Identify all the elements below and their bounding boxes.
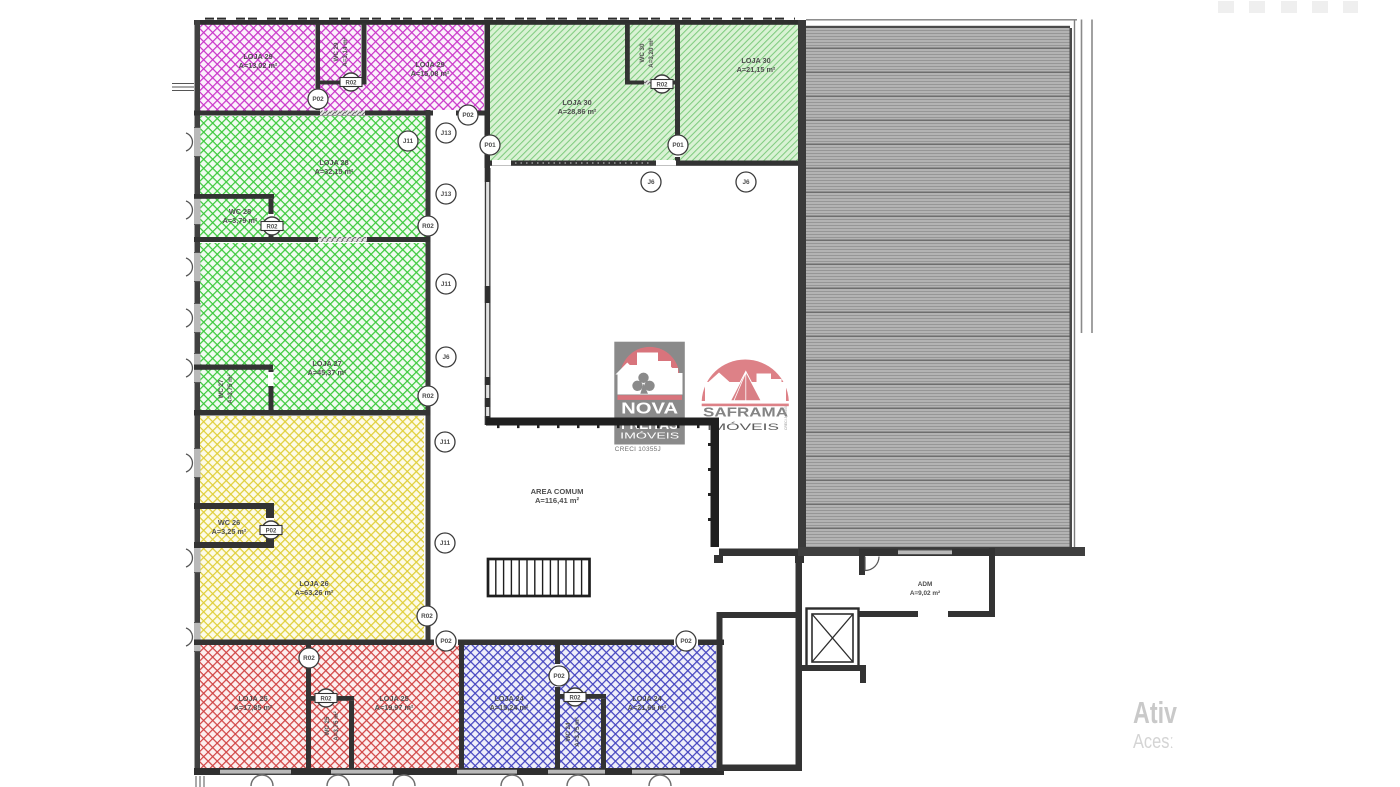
svg-text:LOJA 28: LOJA 28 (319, 158, 348, 167)
svg-text:LOJA 26: LOJA 26 (299, 579, 328, 588)
svg-text:A=3,14 m²: A=3,14 m² (342, 37, 349, 66)
svg-text:AREA COMUM: AREA COMUM (531, 487, 584, 496)
svg-text:J11: J11 (441, 281, 452, 288)
svg-text:LOJA 29: LOJA 29 (243, 52, 272, 61)
svg-text:R02: R02 (422, 393, 434, 400)
svg-text:WC 26: WC 26 (218, 518, 240, 527)
svg-text:A=63,26 m²: A=63,26 m² (295, 588, 334, 597)
svg-text:LOJA 29: LOJA 29 (415, 60, 444, 69)
svg-text:LOJA 27: LOJA 27 (312, 359, 341, 368)
svg-text:R02: R02 (345, 80, 357, 86)
svg-text:A=3,75 m²: A=3,75 m² (333, 711, 340, 740)
svg-text:P02: P02 (266, 528, 277, 534)
svg-text:P02: P02 (312, 96, 324, 103)
svg-text:LOJA 24: LOJA 24 (494, 694, 524, 703)
svg-text:WC 27: WC 27 (218, 379, 225, 398)
svg-text:LOJA 24: LOJA 24 (632, 694, 662, 703)
svg-text:A=15,24 m²: A=15,24 m² (490, 703, 529, 712)
svg-text:WC 30: WC 30 (639, 43, 646, 62)
svg-text:R02: R02 (421, 613, 433, 620)
svg-text:Acesː: Acesː (1133, 731, 1174, 753)
svg-text:R02: R02 (422, 223, 434, 230)
svg-text:J6: J6 (647, 179, 655, 186)
svg-text:P02: P02 (440, 638, 452, 645)
svg-text:LOJA 30: LOJA 30 (741, 56, 770, 65)
svg-text:J11: J11 (440, 540, 451, 547)
svg-text:A=3,75 m²: A=3,75 m² (227, 374, 234, 403)
svg-text:A=21,15 m²: A=21,15 m² (737, 65, 776, 74)
svg-text:LOJA 25: LOJA 25 (379, 694, 408, 703)
svg-text:WC 25: WC 25 (324, 716, 331, 735)
svg-text:P02: P02 (462, 112, 474, 119)
svg-text:A=15,08 m²: A=15,08 m² (411, 69, 450, 78)
svg-text:A=3,20 m²: A=3,20 m² (648, 38, 655, 67)
svg-text:R02: R02 (320, 696, 332, 702)
svg-text:A=3,79 m²: A=3,79 m² (223, 216, 258, 225)
svg-text:A=13,02 m²: A=13,02 m² (239, 61, 278, 70)
svg-text:A=45,37 m²: A=45,37 m² (308, 368, 347, 377)
svg-text:NOVA: NOVA (621, 401, 679, 418)
svg-text:A=32,15 m²: A=32,15 m² (315, 167, 354, 176)
svg-text:A=3,75 m²: A=3,75 m² (574, 717, 581, 746)
svg-text:P01: P01 (484, 142, 496, 149)
svg-text:WC 28: WC 28 (229, 207, 251, 216)
svg-text:R02: R02 (569, 695, 581, 701)
svg-text:A=17,85 m²: A=17,85 m² (234, 703, 273, 712)
svg-text:R02: R02 (266, 224, 278, 230)
svg-text:WC 24: WC 24 (565, 722, 572, 741)
svg-text:A=28,86 m²: A=28,86 m² (558, 107, 597, 116)
svg-text:A=3,25 m²: A=3,25 m² (212, 527, 247, 536)
svg-text:LOJA 30: LOJA 30 (562, 98, 591, 107)
svg-text:P02: P02 (553, 673, 565, 680)
svg-text:A=116,41 m²: A=116,41 m² (535, 496, 580, 505)
svg-text:Ativ: Ativ (1133, 695, 1178, 730)
svg-text:CRECI 10355J: CRECI 10355J (615, 446, 661, 453)
svg-text:A=19,97 m²: A=19,97 m² (375, 703, 414, 712)
svg-text:ADM: ADM (918, 581, 933, 588)
svg-text:P01: P01 (672, 142, 684, 149)
svg-text:R02: R02 (303, 655, 315, 662)
svg-text:CRECI J-10355: CRECI J-10355 (784, 406, 788, 430)
svg-text:P02: P02 (680, 638, 692, 645)
svg-text:J13: J13 (441, 130, 452, 137)
svg-text:R02: R02 (656, 82, 668, 88)
svg-text:J6: J6 (742, 179, 750, 186)
svg-text:A=21,65 m²: A=21,65 m² (628, 703, 667, 712)
svg-text:LOJA 25: LOJA 25 (238, 694, 267, 703)
svg-text:J13: J13 (441, 191, 452, 198)
svg-text:J11: J11 (403, 138, 414, 145)
svg-text:IMÓVEIS: IMÓVEIS (620, 432, 679, 441)
svg-text:J11: J11 (440, 439, 451, 446)
svg-text:J6: J6 (442, 354, 450, 361)
svg-text:WC 29: WC 29 (333, 42, 340, 61)
svg-text:A=9,02 m²: A=9,02 m² (910, 590, 940, 597)
